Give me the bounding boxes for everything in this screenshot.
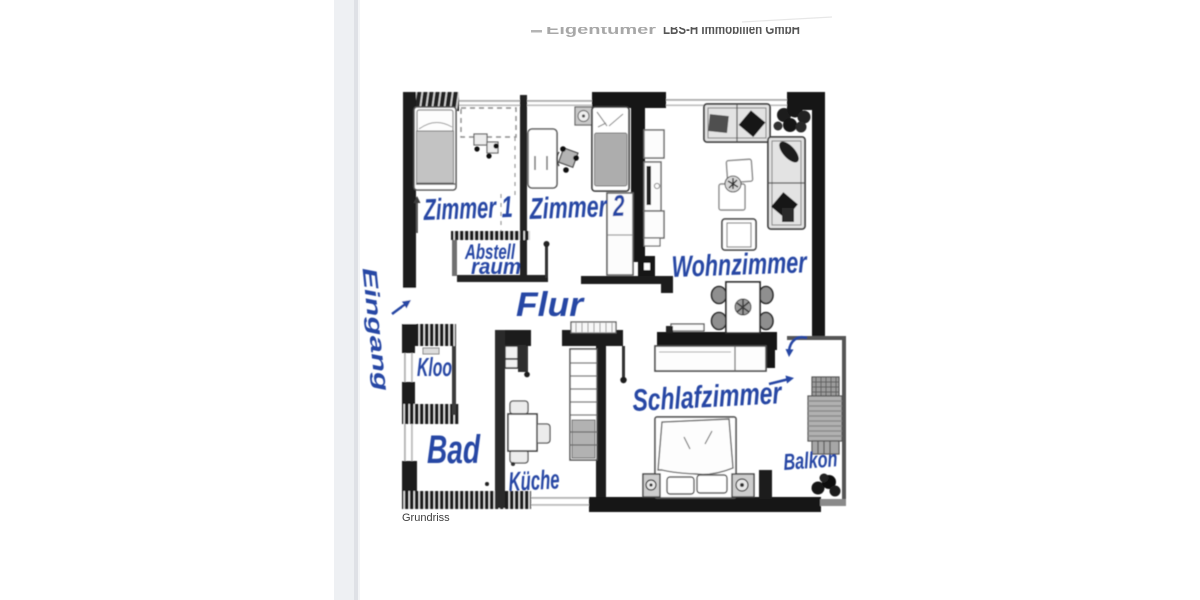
svg-text:Grundriss: Grundriss	[402, 512, 450, 524]
svg-text:Bad: Bad	[427, 428, 481, 472]
svg-text:Zimmer 1: Zimmer 1	[422, 191, 513, 227]
svg-text:raum: raum	[471, 254, 521, 279]
svg-text:Wohnzimmer: Wohnzimmer	[671, 246, 809, 284]
svg-text:Balkon: Balkon	[783, 445, 839, 475]
svg-text:Küche: Küche	[508, 464, 561, 497]
svg-text:Flur: Flur	[516, 286, 585, 324]
svg-text:Kloo: Kloo	[417, 352, 452, 382]
svg-text:Zimmer 2: Zimmer 2	[528, 190, 625, 226]
